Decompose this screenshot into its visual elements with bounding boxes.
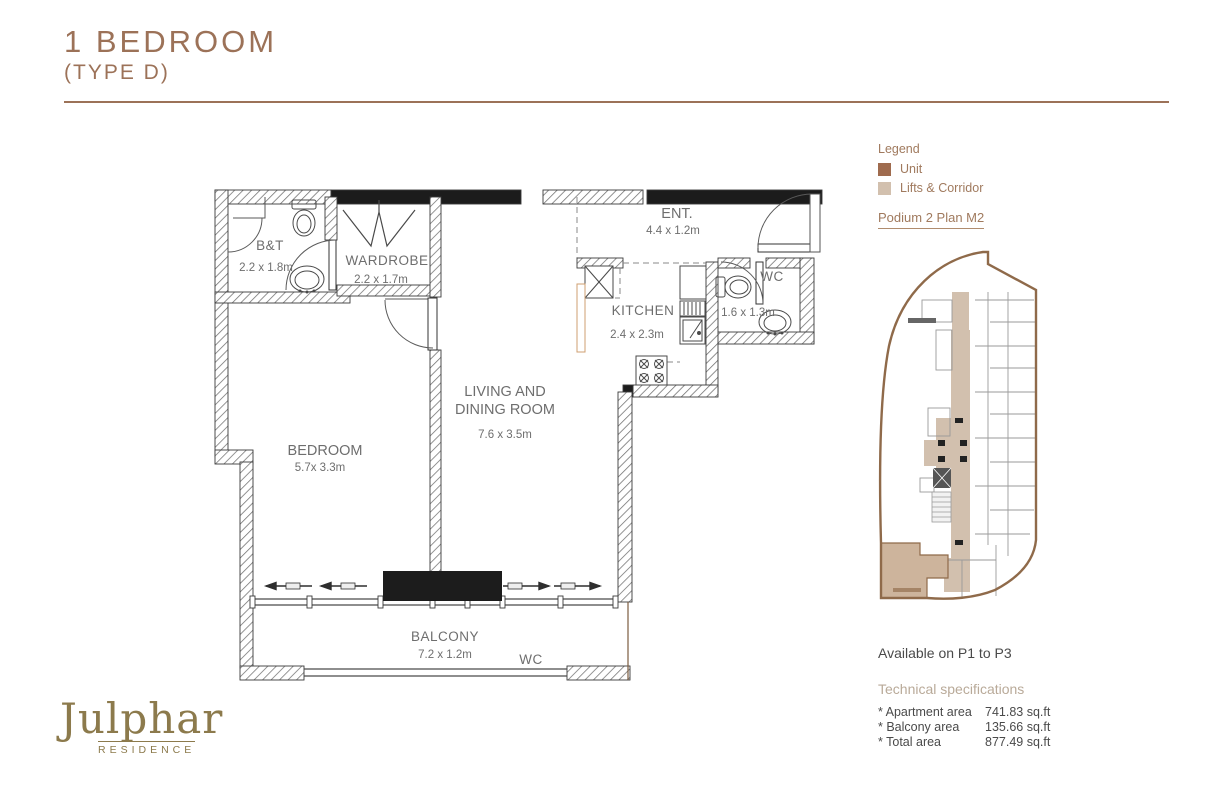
kitchen-fridge — [585, 266, 613, 298]
label-balcony: BALCONY — [411, 629, 479, 644]
wall-wc-bottom — [713, 332, 814, 344]
label-bedroom: BEDROOM — [288, 443, 363, 459]
label-kitchen: KITCHEN — [612, 303, 675, 318]
wall-wc-right — [800, 258, 814, 344]
label-wardrobe: WARDROBE — [345, 253, 428, 268]
legend-item-corridor-label: Lifts & Corridor — [900, 181, 983, 195]
label-wc: WC — [760, 269, 784, 284]
logo-residence-label: RESIDENCE — [98, 741, 195, 756]
kitchen-tall-cabinet — [577, 284, 585, 352]
unit-swatch — [878, 163, 891, 176]
legend-heading: Legend — [878, 142, 1178, 156]
wardrobe-symbol — [343, 200, 415, 246]
label-balcony-dim: 7.2 x 1.2m — [418, 649, 472, 661]
bt-sink — [290, 266, 324, 293]
label-bedroom-dim: 5.7x 3.3m — [295, 462, 346, 474]
label-bt: B&T — [256, 238, 284, 253]
wall-top-hatched-1 — [215, 190, 331, 204]
spec-row-apartment: * Apartment area 741.83 sq.ft — [878, 705, 1050, 720]
spec-row-balcony: * Balcony area 135.66 sq.ft — [878, 720, 1050, 735]
wall-bt-bottom — [215, 292, 350, 303]
legend-item-unit: Unit — [878, 162, 1178, 176]
legend-item-unit-label: Unit — [900, 162, 922, 176]
label-wardrobe-dim: 2.2 x 1.7m — [354, 274, 408, 286]
logo-wordmark: Julphar — [60, 698, 223, 740]
balcony-planter — [383, 571, 502, 601]
spec-value: 135.66 sq.ft — [985, 720, 1050, 735]
plan-reference: Podium 2 Plan M2 — [878, 210, 984, 229]
label-bt-dim: 2.2 x 1.8m — [239, 262, 293, 274]
label-wc-dim: 1.6 x 1.3m — [721, 307, 775, 319]
kitchen-sink-counter — [680, 266, 706, 344]
page-subtitle: (TYPE D) — [64, 61, 277, 85]
legend-block: Legend Unit Lifts & Corridor Podium 2 Pl… — [878, 142, 1178, 229]
wall-living-bedroom-divider — [430, 350, 441, 574]
unit-floor-plan: B&T 2.2 x 1.8m WARDROBE 2.2 x 1.7m ENT. … — [200, 170, 840, 710]
page-title: 1 BEDROOM — [64, 26, 277, 59]
legend-item-corridor: Lifts & Corridor — [878, 181, 1178, 195]
wall-wc-top-2 — [766, 258, 800, 268]
bedroom-door-swing — [385, 300, 433, 348]
spec-row-total: * Total area 877.49 sq.ft — [878, 735, 1050, 750]
label-living-dim: 7.6 x 3.5m — [478, 429, 532, 441]
spec-label: * Apartment area — [878, 705, 985, 720]
label-ent: ENT. — [661, 206, 692, 222]
bt-toilet — [292, 200, 316, 236]
wc-toilet — [716, 276, 751, 298]
wall-kitchen-bottom — [633, 385, 718, 397]
keyplan-unit-detail — [893, 588, 921, 592]
wall-wardrobe-bottom — [337, 285, 435, 296]
wall-top-black-2 — [647, 190, 822, 204]
label-ent-dim: 4.4 x 1.2m — [646, 225, 700, 237]
wall-top-hatched-2 — [543, 190, 643, 204]
floorplan-page: { "title": {"line1": "1 BEDROOM", "line2… — [0, 0, 1221, 800]
wall-bt-wardrobe-divider — [325, 197, 337, 240]
spec-value: 741.83 sq.ft — [985, 705, 1050, 720]
wall-living-right — [618, 392, 632, 602]
spec-label: * Total area — [878, 735, 985, 750]
label-kitchen-dim: 2.4 x 2.3m — [610, 329, 664, 341]
label-living-1: LIVING AND — [464, 384, 545, 400]
julphar-logo: Julphar RESIDENCE — [60, 698, 223, 758]
building-key-plan — [858, 236, 1068, 618]
wall-wardrobe-right — [430, 197, 441, 297]
wall-wc-top-1 — [718, 258, 750, 268]
kitchen-stove — [636, 356, 667, 385]
wall-left-lower — [240, 462, 253, 668]
bt-door-leaf — [329, 240, 336, 290]
wall-top-black-1 — [331, 190, 521, 204]
entrance-door-leaf — [758, 244, 812, 252]
entrance-door-jamb — [810, 194, 820, 252]
label-balcony-wc: WC — [519, 652, 543, 667]
corridor-swatch — [878, 182, 891, 195]
page-title-block: 1 BEDROOM (TYPE D) — [64, 26, 277, 85]
specs-table: * Apartment area 741.83 sq.ft * Balcony … — [878, 705, 1050, 750]
spec-value: 877.49 sq.ft — [985, 735, 1050, 750]
wall-left-upper — [215, 190, 228, 457]
wall-balcony-br — [567, 666, 630, 680]
specs-heading: Technical specifications — [878, 681, 1024, 697]
availability-note: Available on P1 to P3 — [878, 645, 1012, 661]
wall-balcony-bl — [240, 666, 304, 680]
bedroom-door-leaf — [428, 298, 437, 350]
spec-label: * Balcony area — [878, 720, 985, 735]
label-living-2: DINING ROOM — [455, 402, 555, 418]
header-divider — [64, 101, 1169, 103]
